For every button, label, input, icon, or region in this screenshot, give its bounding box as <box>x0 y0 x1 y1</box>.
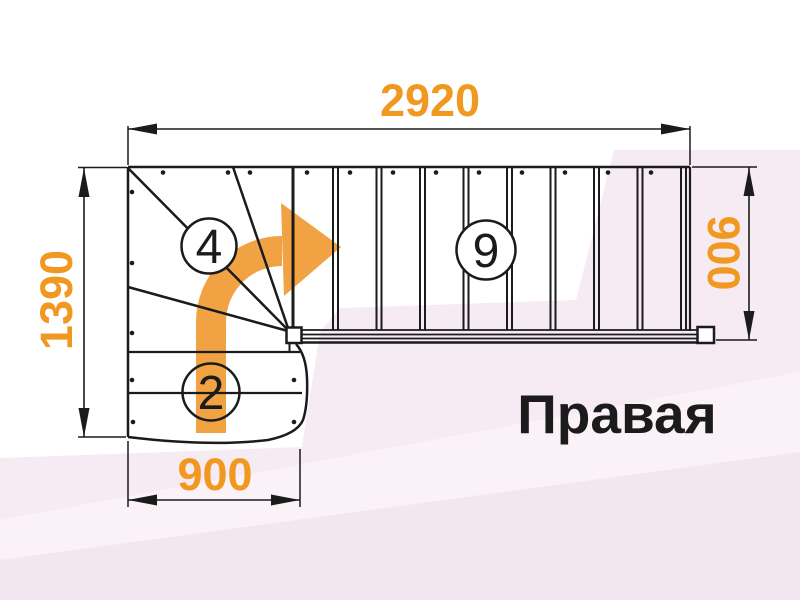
newel-post-top <box>698 327 715 343</box>
dot <box>130 378 135 383</box>
entry-steps-count: 2 <box>198 367 225 420</box>
dot <box>292 420 297 425</box>
main-steps-count: 9 <box>473 225 500 278</box>
dot <box>606 170 611 175</box>
dot <box>391 170 396 175</box>
winder-steps-count: 4 <box>196 221 223 274</box>
dot <box>649 170 654 175</box>
dot <box>248 170 253 175</box>
stair-plan-page: 4 9 2 2920 1390 900 900 Правая <box>0 0 800 600</box>
dot <box>131 420 136 425</box>
dot <box>434 170 439 175</box>
dot <box>305 170 310 175</box>
dot <box>130 261 135 266</box>
dot <box>161 170 166 175</box>
dim-bottom-label: 900 <box>177 449 252 500</box>
dim-top-label: 2920 <box>380 75 480 126</box>
dot <box>130 331 135 336</box>
dot <box>477 170 482 175</box>
stair-plan-drawing: 4 9 2 2920 1390 900 900 Правая <box>0 0 800 600</box>
dot <box>130 190 135 195</box>
dot <box>348 170 353 175</box>
dot <box>520 170 525 175</box>
dim-right-label: 900 <box>698 215 749 290</box>
dot <box>226 170 231 175</box>
dim-left-label: 1390 <box>31 250 82 350</box>
dot <box>292 378 297 383</box>
newel-post-corner <box>287 328 302 344</box>
dot <box>563 170 568 175</box>
variant-title: Правая <box>517 383 716 445</box>
